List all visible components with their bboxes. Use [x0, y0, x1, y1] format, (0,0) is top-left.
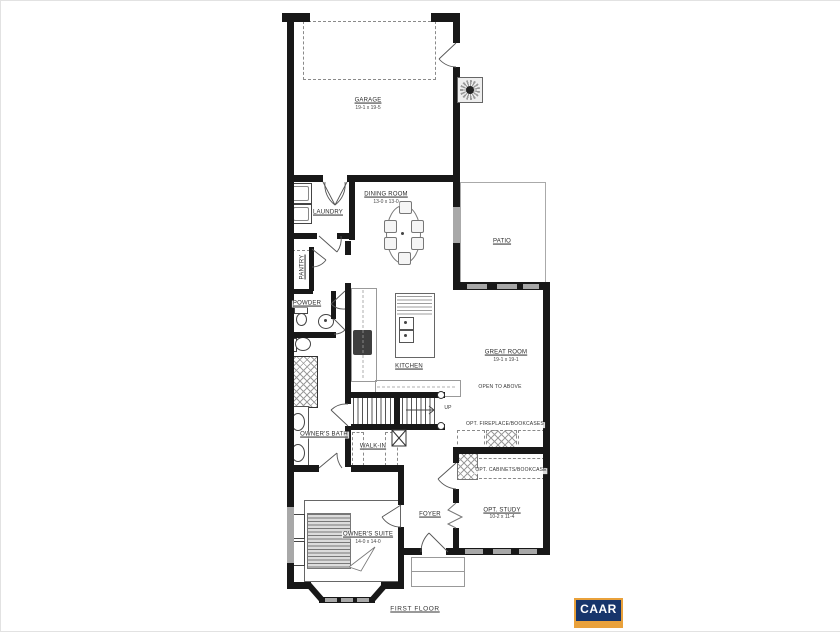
wall-segment	[287, 465, 319, 472]
room-dims-owners-suite: 14-0 x 14-0	[354, 540, 381, 546]
wall-segment	[345, 241, 351, 255]
wall-segment	[398, 527, 404, 589]
dining-chair	[399, 201, 412, 214]
island-bar-top	[397, 296, 432, 316]
wall-segment	[309, 247, 314, 291]
wall-segment	[351, 424, 445, 430]
room-label-great-room: GREAT ROOM	[484, 350, 528, 357]
note-open-to-above: OPEN TO ABOVE	[477, 385, 522, 391]
dining-chair	[384, 220, 397, 233]
powder-toilet-bowl	[296, 313, 307, 326]
wall-segment	[453, 489, 459, 503]
opt-cabinets-row-top	[479, 458, 545, 459]
note-opt-fireplace: OPT. FIREPLACE/BOOKCASES	[465, 422, 545, 428]
island-sink-drain-2	[404, 334, 407, 337]
room-label-kitchen: KITCHEN	[394, 364, 424, 371]
window-segment	[497, 284, 517, 289]
caar-logo-text: CAAR	[580, 600, 617, 619]
wall-segment	[345, 283, 351, 404]
wall-segment	[351, 465, 404, 472]
wall-segment	[282, 13, 310, 22]
dining-chair	[411, 220, 424, 233]
fan-hub	[466, 86, 474, 94]
wall-segment	[287, 13, 294, 586]
room-label-laundry: LAUNDRY	[312, 210, 344, 217]
washer-drum	[292, 186, 309, 201]
wall-segment	[543, 282, 550, 555]
wall-segment	[381, 582, 404, 589]
window-segment	[357, 598, 369, 602]
wall-segment	[349, 182, 355, 240]
room-dims-study: 10-2 x 11-4	[489, 515, 516, 521]
window-segment	[325, 598, 337, 602]
room-label-powder: POWDER	[292, 301, 322, 308]
wall-segment	[347, 175, 460, 182]
patio-outline	[460, 182, 546, 285]
room-label-owners-bath: OWNER'S BATH	[299, 432, 349, 439]
entry-stoop	[411, 557, 465, 587]
window-segment	[287, 507, 294, 563]
sheet-title: FIRST FLOOR	[390, 606, 439, 613]
fan-symbol	[457, 77, 483, 103]
room-label-walk-in: WALK-IN	[359, 444, 387, 451]
kitchen-range	[353, 330, 372, 355]
window-segment	[519, 549, 537, 554]
dining-chair	[398, 252, 411, 265]
opt-cabinets-row-bottom	[479, 478, 545, 479]
stair-flight-right	[402, 398, 438, 424]
window-segment	[467, 284, 487, 289]
wall-segment	[453, 454, 459, 463]
wall-segment	[287, 175, 323, 182]
caar-logo: CAAR	[574, 598, 623, 628]
wall-segment	[398, 465, 404, 505]
window-segment	[523, 284, 539, 289]
room-dims-great-room: 19-1 x 19-1	[492, 358, 519, 364]
room-label-owners-suite: OWNER'S SUITE	[342, 532, 394, 539]
wall-segment	[287, 233, 317, 239]
room-label-garage: GARAGE	[354, 98, 383, 105]
window-segment	[493, 549, 511, 554]
wall-segment	[337, 233, 349, 239]
floor-plan: GARAGE 19-1 x 19-5 LAUNDRY DINING ROOM 1…	[0, 0, 840, 632]
dining-chair	[411, 237, 424, 250]
stoop-step-line	[412, 571, 464, 572]
table-center	[401, 232, 404, 235]
study-window-break	[448, 503, 462, 528]
bath-toilet-bowl	[295, 337, 311, 351]
powder-sink-drain	[324, 319, 327, 322]
room-dims-dining: 13-0 x 13-0	[372, 200, 399, 206]
wall-segment	[453, 447, 548, 454]
wall-segment	[287, 582, 311, 589]
wall-segment	[287, 289, 313, 294]
wall-segment	[398, 548, 422, 555]
room-label-pantry: PANTRY	[300, 254, 307, 281]
dining-chair	[384, 237, 397, 250]
room-label-foyer: FOYER	[418, 512, 442, 519]
island-sink-drain-1	[404, 321, 407, 324]
room-label-dining: DINING ROOM	[363, 192, 409, 199]
stairs-up-label: UP	[443, 406, 452, 412]
window-segment	[465, 549, 483, 554]
room-label-patio: PATIO	[492, 239, 512, 246]
wall-segment	[453, 528, 459, 550]
room-dims-garage: 19-1 x 19-5	[354, 106, 381, 112]
note-opt-cabinets: OPT. CABINETS/BOOKCASE	[474, 468, 547, 474]
wall-segment	[453, 13, 460, 43]
garage-door-overhead	[303, 21, 436, 80]
window-segment	[453, 207, 460, 243]
window-segment	[341, 598, 353, 602]
stair-flight-left	[353, 398, 392, 424]
caar-logo-strip	[576, 621, 621, 626]
bed-blanket	[307, 513, 351, 569]
wall-segment	[331, 291, 336, 319]
wall-segment	[287, 332, 336, 338]
dryer-drum	[293, 207, 309, 221]
